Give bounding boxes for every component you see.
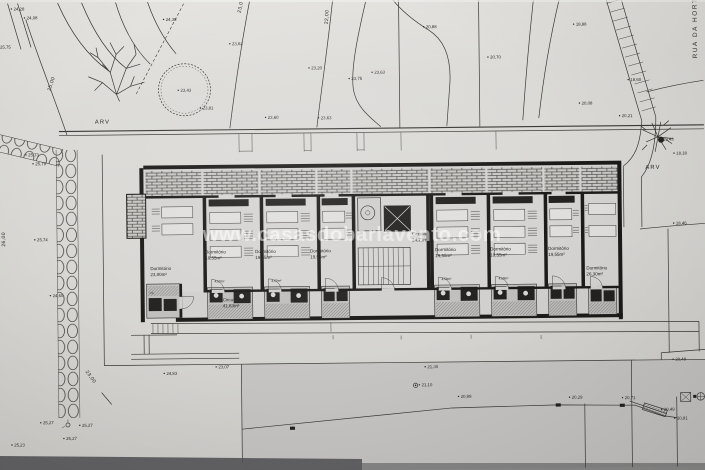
bathroom-area: 4,50m² <box>271 279 281 283</box>
spot-elevation: 23,07 <box>218 364 229 369</box>
spot-point <box>63 438 64 439</box>
spot-elevation: 18,46 <box>676 220 687 225</box>
contour-elevation: 23,00 <box>84 369 97 384</box>
spot-point <box>178 90 179 91</box>
spot-elevation: 20,48 <box>675 357 686 362</box>
watermark-text: www.casasdobarlavento.com <box>202 223 502 246</box>
spot-elevation: 20,29 <box>572 395 583 400</box>
room-name: Dormitório <box>150 266 171 271</box>
spot-point <box>579 102 580 103</box>
room-name: Dormitório <box>205 249 226 254</box>
spot-point <box>164 373 165 374</box>
spot-point <box>348 78 349 79</box>
spot-elevation: 25,79 <box>35 161 46 166</box>
spot-point <box>573 23 574 24</box>
spot-elevation: 20,91 <box>677 415 688 420</box>
room-area: 19,55m² <box>435 253 452 258</box>
room-name: Dormitório <box>548 246 569 251</box>
bathroom-area: I.S. <box>150 291 155 295</box>
curb-marker <box>620 404 625 407</box>
spot-elevation: 24,08 <box>27 15 38 20</box>
spot-elevation: 24,28 <box>14 6 25 11</box>
spot-elevation: 21,10 <box>422 382 433 387</box>
room-area: 19,55m² <box>255 255 272 260</box>
room-name: Dormitório <box>435 247 456 252</box>
lamp-post-icon <box>62 419 70 428</box>
spot-point <box>673 152 674 153</box>
room-name: Dormitório <box>255 249 276 254</box>
room-name: Circulação <box>223 297 245 302</box>
spot-point <box>229 43 230 44</box>
architectural-site-plan: 24,2824,0825,7524,3823,6223,4323,8123,60… <box>0 0 705 470</box>
contour-elevation: 26,00 <box>1 232 7 247</box>
room-name: Dormitório <box>310 248 331 253</box>
contour-elevation: 23,0 <box>237 1 245 13</box>
spot-elevation: 23,63 <box>321 115 332 120</box>
spot-elevation: 19,43 <box>663 137 674 142</box>
room-name: Dormitório <box>586 265 607 270</box>
spot-elevation: 25,27 <box>43 420 54 425</box>
bathroom-area: 4,50m² <box>441 277 451 281</box>
spot-point <box>627 79 628 80</box>
spot-point <box>308 67 309 68</box>
spot-elevation: 23,20 <box>311 65 322 70</box>
spot-elevation: 25,75 <box>0 45 11 50</box>
contour-elevation: 25,00 <box>47 76 57 92</box>
room-area: 19,55m² <box>205 255 222 260</box>
spot-point <box>215 366 216 367</box>
spot-elevation: 18,18 <box>676 150 687 155</box>
site-plan-photo: 24,2824,0825,7524,3823,6223,4323,8123,60… <box>0 0 705 470</box>
road-area <box>61 359 705 470</box>
spot-elevation: 20,21 <box>622 113 633 118</box>
tree-label-right: ARV <box>645 165 660 171</box>
spot-point <box>11 444 12 445</box>
room-area: 26,30m² <box>586 271 603 276</box>
spot-elevation: 24,38 <box>166 17 177 22</box>
spot-point <box>50 295 51 296</box>
spot-point <box>34 239 35 240</box>
spot-elevation: 24,60 <box>53 293 64 298</box>
spot-elevation: 21,30 <box>427 364 438 369</box>
tree-bare-icon <box>88 42 145 102</box>
spot-elevation: 23,60 <box>268 115 279 120</box>
street-name-label: RUA DA HORTINHA <box>691 0 699 58</box>
spot-point <box>673 222 674 223</box>
contour-elevation: 22,00 <box>324 10 331 25</box>
spot-elevation: 25,23 <box>14 442 25 447</box>
spot-elevation: 24,83 <box>166 371 177 376</box>
spot-point <box>371 72 372 73</box>
spot-elevation: 23,75 <box>351 76 362 81</box>
spot-elevation: 23,63 <box>374 70 385 75</box>
spot-point <box>32 163 33 164</box>
room-area: 23,80m² <box>150 272 167 277</box>
spot-point <box>265 117 266 118</box>
bathroom-area: 4,50m² <box>498 276 508 280</box>
room-area: 19,55m² <box>548 252 565 257</box>
spot-point <box>619 115 620 116</box>
spot-elevation: 20,08 <box>582 100 593 105</box>
spot-elevation: 23,43 <box>180 88 191 93</box>
spot-point <box>24 17 25 18</box>
room-area: 19,55m² <box>490 252 507 257</box>
curb-marker <box>290 427 295 430</box>
spot-elevation: 18,60 <box>630 77 641 82</box>
room-area: 41,63m² <box>223 303 240 308</box>
spot-point <box>11 8 12 9</box>
spot-elevation: 25,27 <box>66 436 77 441</box>
spot-elevation: 20,71 <box>625 395 636 400</box>
spot-elevation: 20,49 <box>664 407 675 412</box>
spot-point <box>79 425 80 426</box>
stone-wall <box>0 133 80 419</box>
bathroom-area: 4,50m² <box>214 279 224 283</box>
spot-point <box>40 422 41 423</box>
spot-point <box>163 19 164 20</box>
spot-elevation: 25,27 <box>82 423 93 428</box>
spot-point <box>487 56 488 57</box>
spot-elevation: 20,88 <box>426 24 437 29</box>
spot-elevation: 25,73 <box>28 152 39 157</box>
room-area: 19,55m² <box>310 254 327 259</box>
south-walkway <box>151 318 699 357</box>
spot-elevation: 23,81 <box>203 105 214 110</box>
spot-elevation: 25,74 <box>37 237 48 242</box>
spot-elevation: 23,62 <box>232 41 243 46</box>
curb-marker <box>556 403 561 406</box>
spot-elevation: 18,88 <box>576 22 587 27</box>
spot-elevation: 20,98 <box>461 394 472 399</box>
room-name: Dormitório <box>490 246 511 251</box>
spot-elevation: 20,70 <box>490 54 501 59</box>
tree-label-left: ARV <box>95 120 110 126</box>
